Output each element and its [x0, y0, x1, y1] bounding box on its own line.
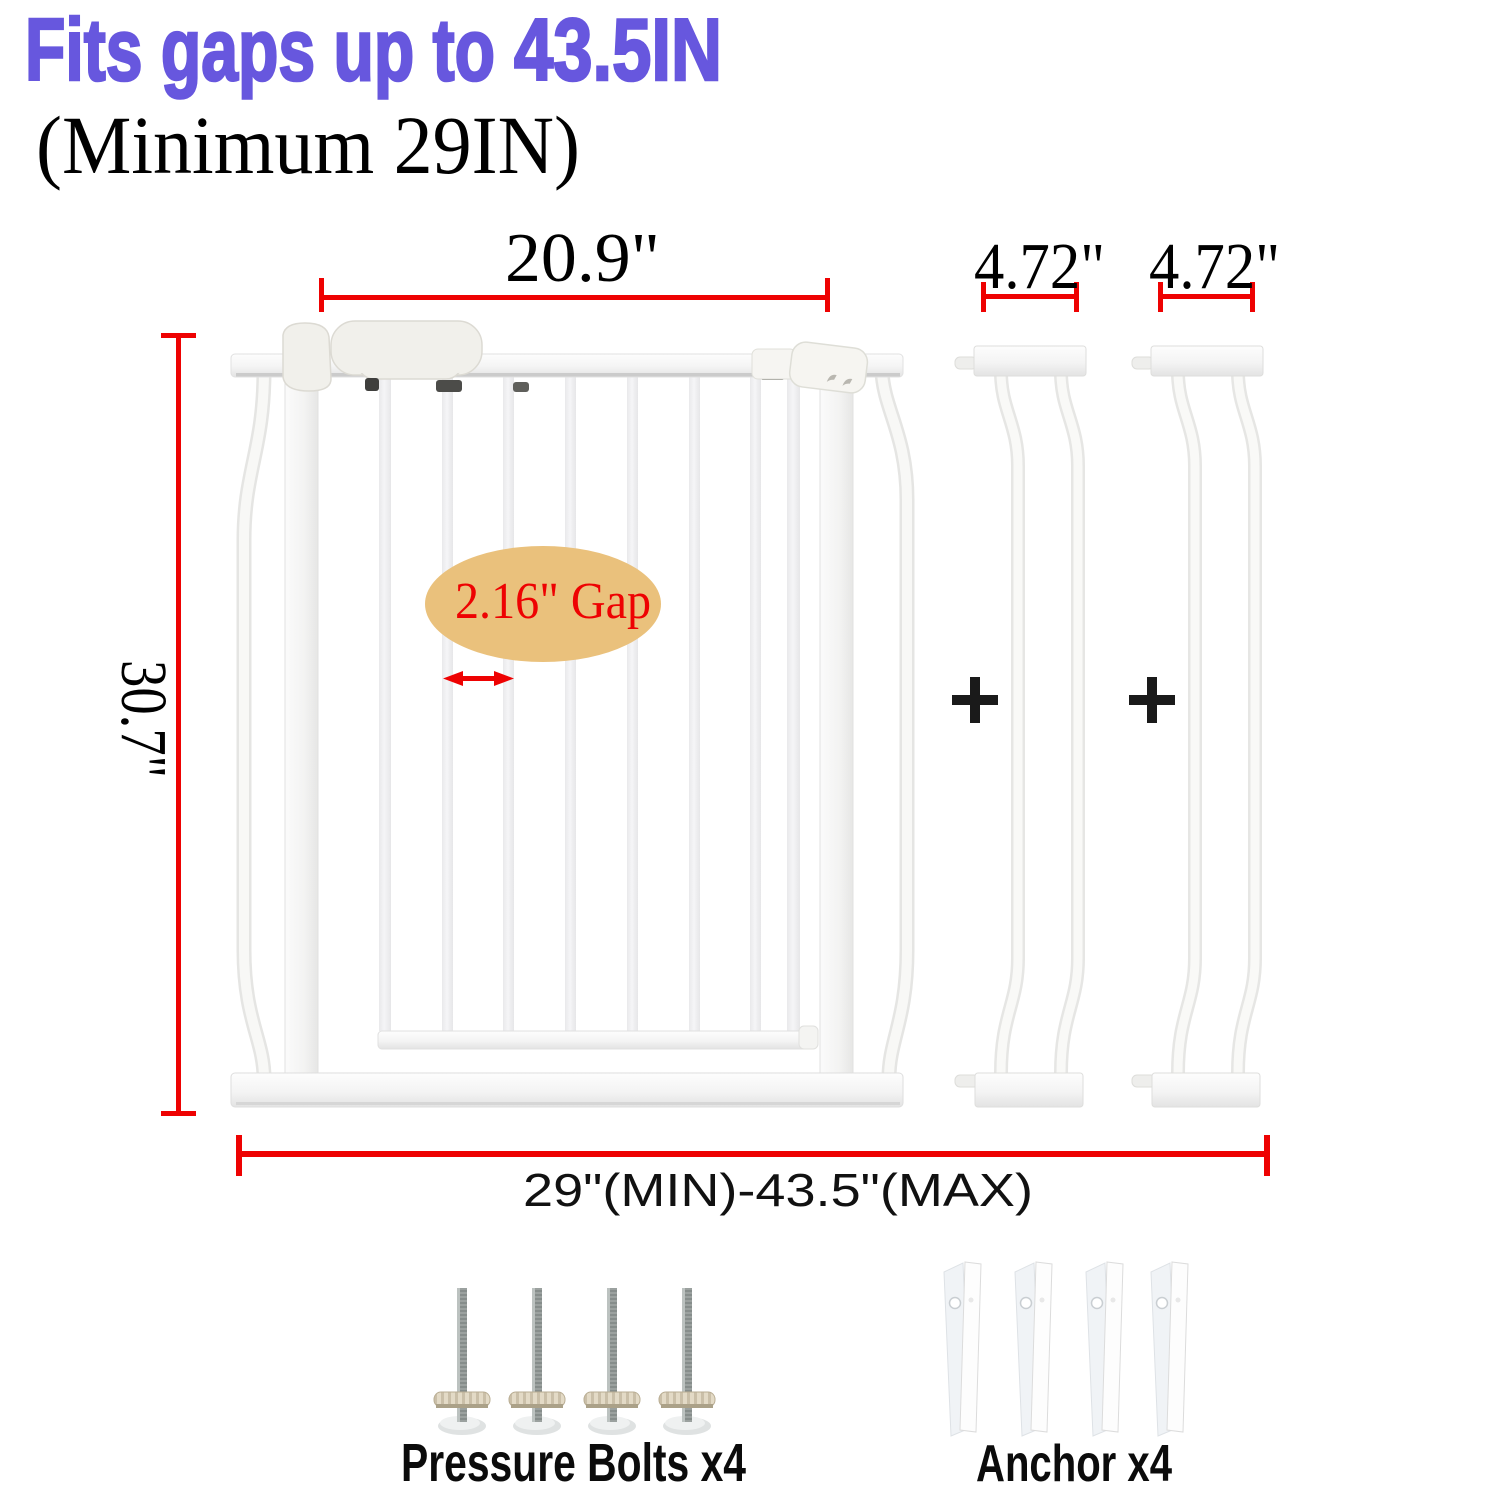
svg-text:4.72": 4.72": [974, 230, 1105, 303]
svg-text:20.9": 20.9": [505, 220, 660, 297]
svg-text:29"(MIN)-43.5"(MAX): 29"(MIN)-43.5"(MAX): [523, 1164, 1033, 1216]
svg-text:2.16" Gap: 2.16" Gap: [455, 573, 651, 630]
svg-text:30.7": 30.7": [107, 660, 180, 778]
svg-text:Pressure Bolts x4: Pressure Bolts x4: [401, 1433, 746, 1493]
svg-text:Fits gaps up to: Fits gaps up to: [25, 0, 495, 99]
svg-text:(Minimum 29IN): (Minimum 29IN): [36, 99, 580, 191]
svg-text:4.72": 4.72": [1149, 230, 1280, 303]
svg-text:43.5IN: 43.5IN: [514, 0, 722, 99]
svg-text:Anchor x4: Anchor x4: [976, 1435, 1172, 1493]
